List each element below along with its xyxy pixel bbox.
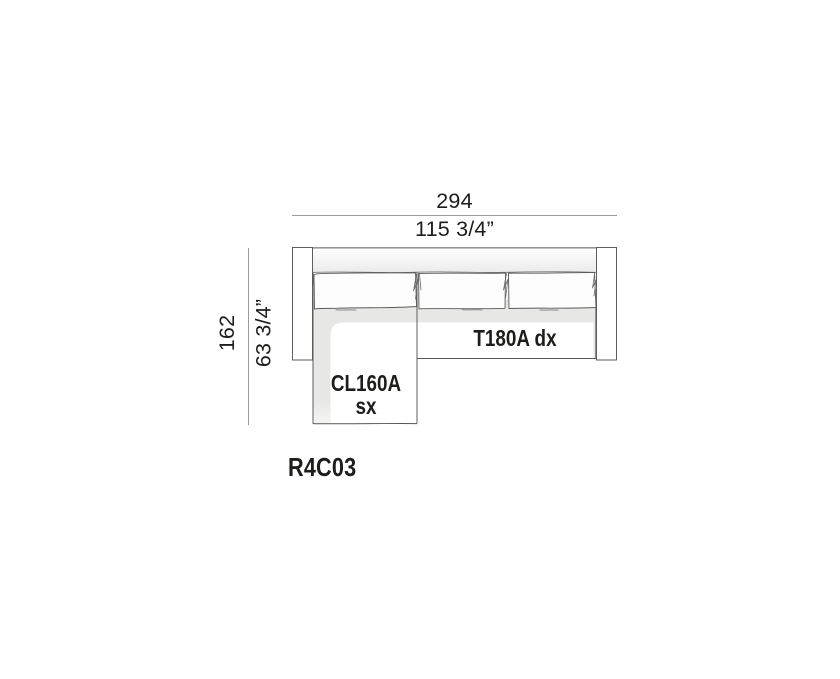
cushion-middle xyxy=(419,273,506,309)
right-armrest xyxy=(597,248,617,361)
module-label-chaise-line1: CL160A xyxy=(325,372,407,395)
spec-sheet-page: 294 115 3/4” 162 63 3/4” xyxy=(0,0,840,679)
width-dimension-line xyxy=(292,215,617,216)
cushion-left xyxy=(314,273,417,309)
module-label-sofa-right: T180A dx xyxy=(445,327,584,350)
overall-depth-inches: 63 3/4” xyxy=(251,261,277,406)
depth-dimension-line xyxy=(248,248,249,425)
overall-depth-cm: 162 xyxy=(214,273,240,393)
overall-width-cm: 294 xyxy=(292,190,617,212)
module-label-chaise-line2: sx xyxy=(325,395,407,418)
product-code: R4C03 xyxy=(288,455,356,481)
backrest xyxy=(313,248,598,273)
module-label-chaise: CL160A sx xyxy=(316,372,416,418)
overall-width-inches: 115 3/4” xyxy=(292,218,617,240)
cushion-right xyxy=(509,273,597,309)
left-armrest xyxy=(293,248,313,361)
